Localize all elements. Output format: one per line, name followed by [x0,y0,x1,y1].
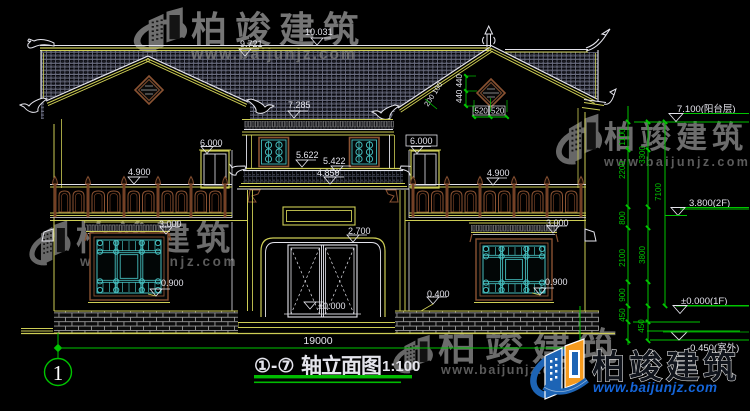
svg-text:450: 450 [618,308,627,322]
svg-text:①-⑦: ①-⑦ [254,356,294,377]
svg-text:3800: 3800 [638,246,647,264]
svg-text:440 440: 440 440 [455,74,464,103]
svg-text:10.031: 10.031 [305,27,333,37]
svg-text:2.700: 2.700 [348,226,371,236]
svg-text:1100: 1100 [618,128,627,146]
svg-text:520: 520 [491,107,505,116]
svg-text:2200: 2200 [618,161,627,179]
svg-text:7100: 7100 [654,183,663,201]
svg-text:±0.000: ±0.000 [318,301,345,311]
svg-text:www.baijunjz.com: www.baijunjz.com [593,380,718,395]
svg-text:1: 1 [53,361,64,385]
svg-text:柏竣建筑: 柏竣建筑 [191,9,367,50]
svg-text:9.721: 9.721 [240,39,263,49]
svg-text:800: 800 [618,211,627,225]
svg-text:5.622: 5.622 [296,150,319,160]
svg-text:5.422: 5.422 [323,156,346,166]
svg-text:19000: 19000 [303,335,332,347]
svg-text:6.000: 6.000 [410,136,433,146]
svg-text:4.900: 4.900 [128,167,151,177]
svg-text:3.000: 3.000 [546,218,569,228]
svg-text:900: 900 [618,288,627,302]
svg-text:3300: 3300 [638,146,647,164]
svg-text:1:100: 1:100 [382,358,420,375]
svg-text:450: 450 [637,319,646,333]
svg-text:0.900: 0.900 [545,277,568,287]
svg-text:3.000: 3.000 [159,219,182,229]
svg-text:520: 520 [475,107,489,116]
svg-text:轴立面图: 轴立面图 [301,354,381,378]
svg-text:4.900: 4.900 [487,168,510,178]
svg-text:7.285: 7.285 [288,100,311,110]
svg-text:0.900: 0.900 [161,278,184,288]
svg-text:4.850: 4.850 [317,168,340,178]
svg-text:2100: 2100 [618,249,627,267]
